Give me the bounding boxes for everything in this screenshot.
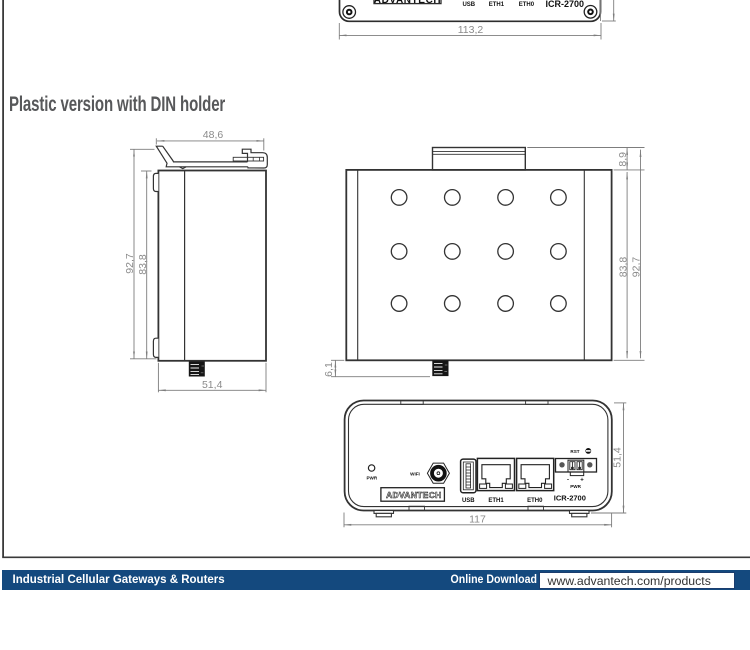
svg-text:92,7: 92,7 (631, 257, 643, 278)
svg-text:51,4: 51,4 (612, 447, 624, 468)
svg-text:51,4: 51,4 (202, 379, 223, 391)
svg-text:USB: USB (462, 2, 475, 8)
svg-text:PWR: PWR (366, 476, 377, 481)
svg-text:+: + (580, 477, 584, 483)
svg-text:8,9: 8,9 (617, 152, 629, 167)
svg-text:92,7: 92,7 (124, 253, 136, 274)
svg-text:48,6: 48,6 (203, 129, 224, 141)
svg-text:ADVANTECH: ADVANTECH (386, 490, 441, 500)
svg-text:ETH0: ETH0 (519, 2, 535, 8)
svg-text:WIFI: WIFI (410, 472, 420, 477)
svg-text:ICR-2700: ICR-2700 (546, 0, 585, 9)
svg-text:ETH0: ETH0 (527, 498, 543, 504)
svg-text:RST: RST (570, 449, 579, 454)
svg-text:83,8: 83,8 (137, 254, 149, 275)
svg-text:117: 117 (469, 513, 486, 525)
svg-text:USB: USB (462, 498, 475, 504)
svg-text:-: - (567, 477, 569, 483)
svg-text:ICR-2700: ICR-2700 (554, 493, 586, 502)
svg-text:ETH1: ETH1 (488, 498, 504, 504)
svg-text:PWR: PWR (570, 484, 581, 489)
svg-text:83,8: 83,8 (617, 257, 629, 278)
svg-text:ETH1: ETH1 (489, 2, 505, 8)
svg-text:ADVANTECH: ADVANTECH (374, 0, 441, 6)
svg-text:113,2: 113,2 (458, 24, 484, 36)
svg-text:6,1: 6,1 (323, 362, 335, 377)
